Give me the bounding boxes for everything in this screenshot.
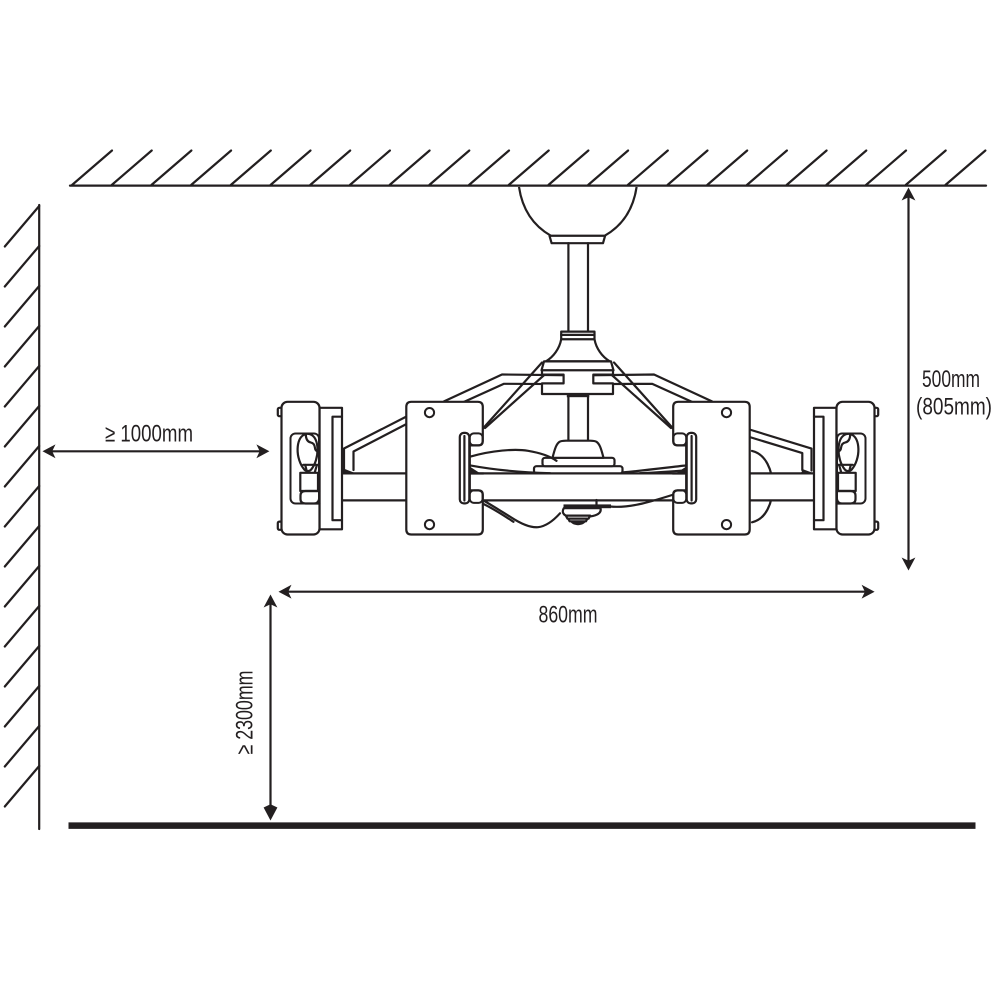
svg-text:860mm: 860mm: [539, 602, 598, 629]
svg-text:≥ 1000mm: ≥ 1000mm: [105, 421, 193, 448]
svg-text:(805mm): (805mm): [916, 394, 992, 421]
svg-text:≥ 2300mm: ≥ 2300mm: [232, 671, 259, 755]
svg-text:500mm: 500mm: [922, 366, 980, 393]
